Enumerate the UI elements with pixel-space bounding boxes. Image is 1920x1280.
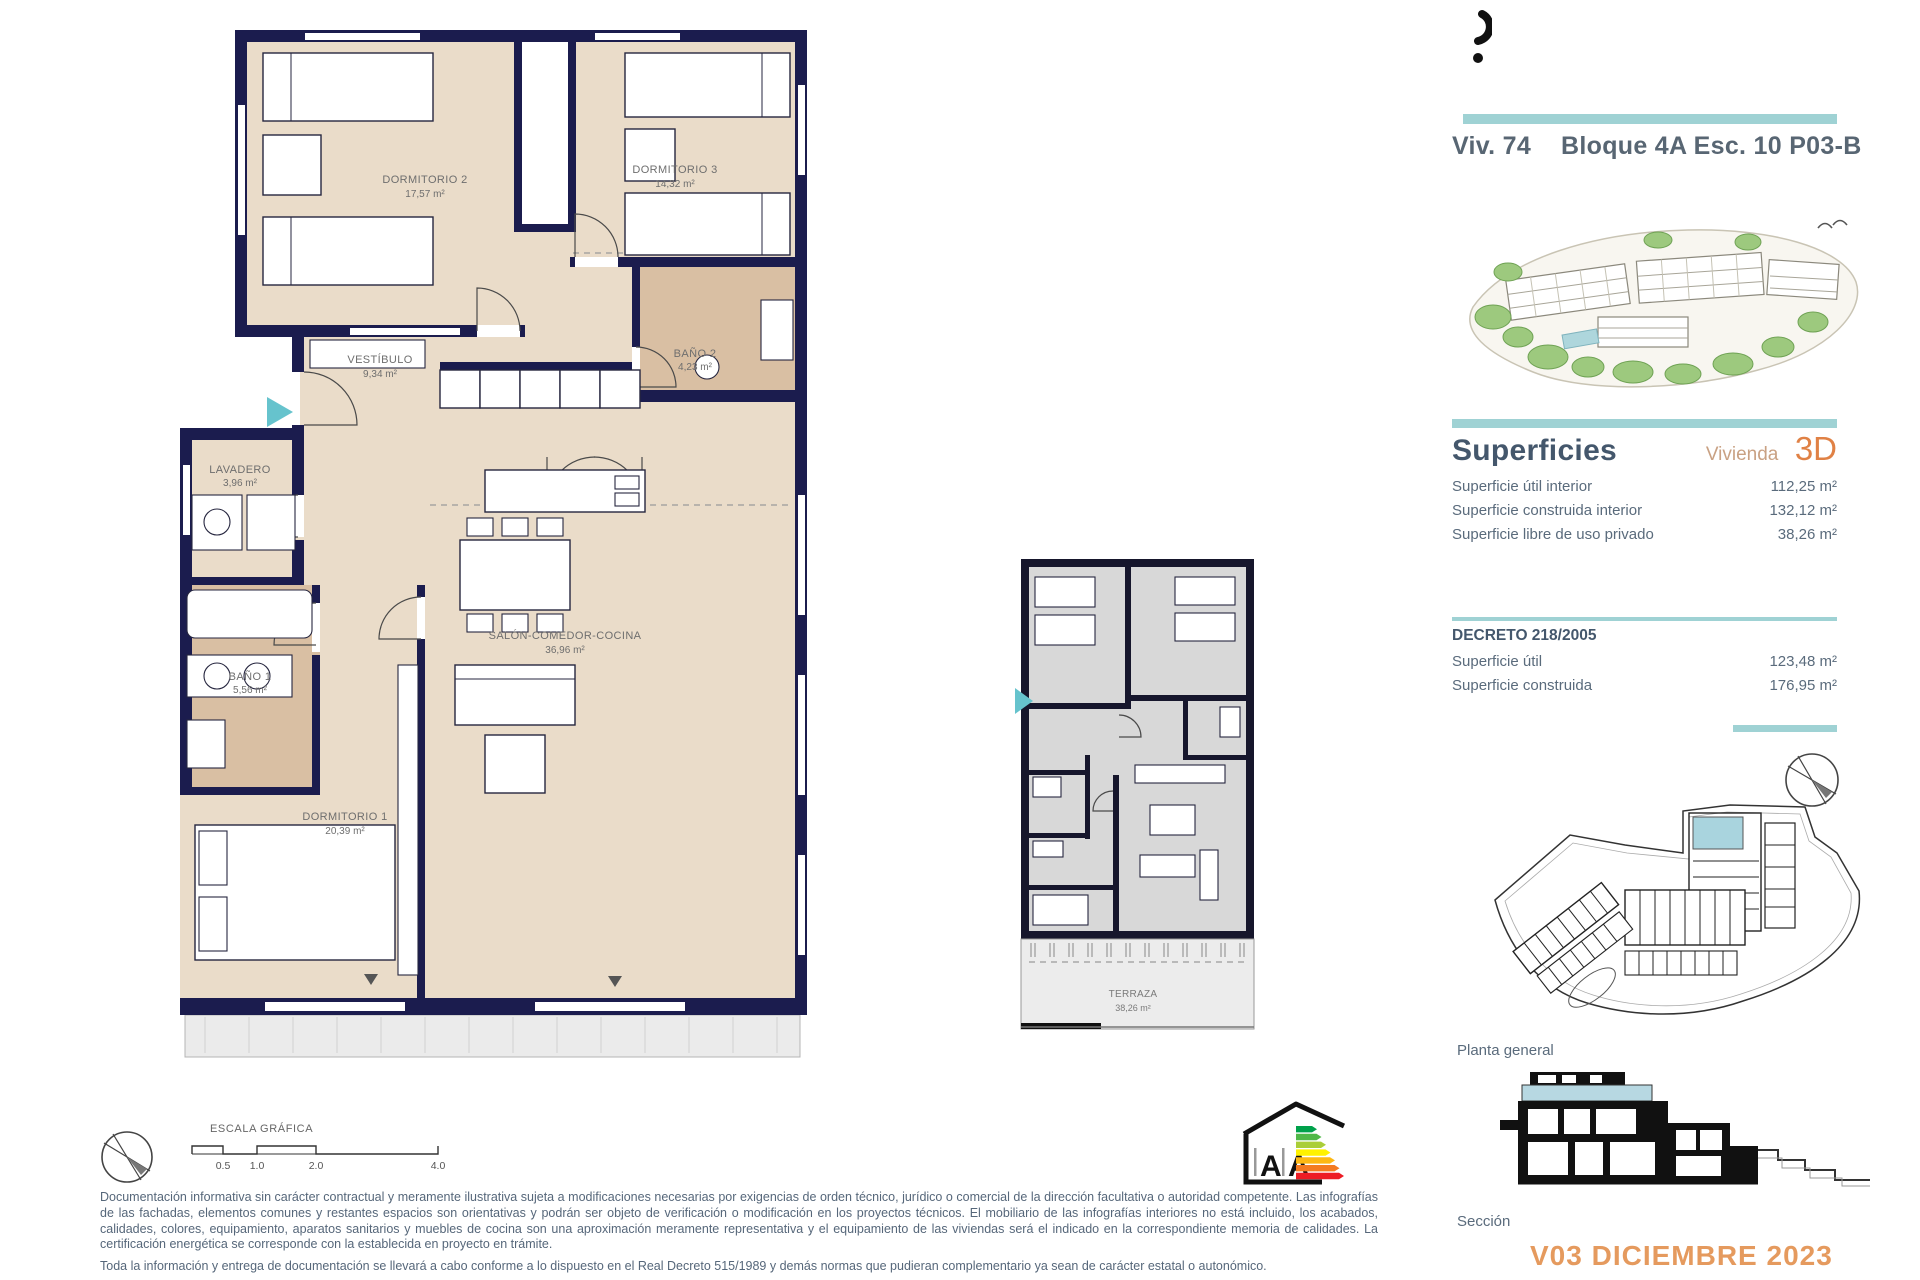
divider-bar: [1463, 114, 1837, 124]
site-plan: [1475, 795, 1875, 1040]
room-area: 9,34 m²: [363, 369, 398, 380]
disclaimer-paragraph: Toda la información y entrega de documen…: [100, 1259, 1378, 1275]
table-row: Superficie construida 176,95 m²: [1452, 677, 1837, 694]
scale-tick: 1.0: [250, 1160, 265, 1172]
row-label: Superficie libre de uso privado: [1452, 526, 1654, 543]
section-drawing: [1500, 1068, 1870, 1198]
divider-bar-short: [1733, 725, 1837, 732]
terrace-label: TERRAZA: [1109, 989, 1158, 1000]
disclaimer-paragraph: Documentación informativa sin carácter c…: [100, 1190, 1378, 1253]
site-block-center: [1625, 890, 1745, 975]
terrace-strip: [185, 1015, 800, 1057]
site-plan-caption: Planta general: [1457, 1042, 1554, 1059]
corridor-top: [520, 230, 640, 327]
logo-fragment: [1462, 8, 1492, 66]
divider-bar: [1452, 419, 1837, 428]
energy-rating-icon: A A: [1238, 1092, 1350, 1190]
room-area: 36,96 m²: [545, 645, 585, 656]
compass-icon: [98, 1128, 156, 1186]
row-label: Superficie construida interior: [1452, 502, 1642, 519]
superficies-heading: Superficies: [1452, 434, 1617, 468]
entrance-arrow-icon: [267, 397, 293, 427]
bird-icon: [1818, 221, 1847, 229]
room-label: SALÓN-COMEDOR-COCINA: [489, 629, 642, 642]
room-label: DORMITORIO 1: [302, 811, 387, 823]
terrace-area: 38,26 m²: [1115, 1003, 1151, 1013]
row-value: 112,25 m²: [1771, 478, 1837, 495]
vivienda-group: Vivienda 3D: [1706, 430, 1837, 468]
energy-letter: A: [1260, 1150, 1282, 1183]
room-area: 4,23 m²: [678, 362, 713, 373]
scale-tick: 4.0: [431, 1160, 446, 1172]
section-caption: Sección: [1457, 1213, 1510, 1230]
room-area: 5,56 m²: [233, 685, 268, 696]
room-area: 17,57 m²: [405, 189, 445, 200]
table-row: Superficie libre de uso privado 38,26 m²: [1452, 526, 1837, 543]
row-label: Superficie útil: [1452, 653, 1542, 670]
table-row: Superficie útil interior 112,25 m²: [1452, 478, 1837, 495]
floorplan-sheet: DORMITORIO 2 17,57 m² DORMITORIO 3 14,32…: [0, 0, 1920, 1280]
highlighted-unit: [1693, 817, 1743, 849]
row-label: Superficie útil interior: [1452, 478, 1592, 495]
unit-location: Bloque 4A Esc. 10 P03-B: [1561, 132, 1862, 161]
key-plan: TERRAZA 38,26 m²: [1015, 555, 1260, 1055]
energy-arrows: [1296, 1126, 1344, 1179]
unit-title: Viv. 74 Bloque 4A Esc. 10 P03-B: [1452, 132, 1862, 161]
key-plan-terrace: TERRAZA 38,26 m²: [1021, 939, 1254, 1029]
room-label: DORMITORIO 3: [632, 164, 717, 176]
room-label: BAÑO 2: [674, 347, 717, 360]
room-label: BAÑO 1: [229, 670, 272, 683]
shaft: [520, 40, 570, 230]
aerial-render: [1448, 212, 1873, 402]
room-label: DORMITORIO 2: [382, 174, 467, 186]
row-value: 123,48 m²: [1769, 653, 1837, 670]
vivienda-type: 3D: [1795, 430, 1837, 467]
graphic-scale: ESCALA GRÁFICA 0.5 1.0 2.0 4.0: [180, 1118, 450, 1176]
room-area: 14,32 m²: [655, 179, 695, 190]
divider-line: [1452, 617, 1837, 621]
corridor-bottom: [300, 455, 425, 585]
scale-title: ESCALA GRÁFICA: [210, 1122, 313, 1135]
room-label: VESTÍBULO: [347, 353, 412, 366]
row-value: 132,12 m²: [1769, 502, 1837, 519]
room-area: 3,96 m²: [223, 478, 258, 489]
superficies-header: Superficies Vivienda 3D: [1452, 430, 1837, 468]
row-value: 38,26 m²: [1778, 526, 1837, 543]
scale-tick: 0.5: [216, 1160, 231, 1172]
room-label: LAVADERO: [209, 464, 271, 476]
main-floor-plan: DORMITORIO 2 17,57 m² DORMITORIO 3 14,32…: [95, 25, 815, 1070]
superficies-table: Superficie útil interior 112,25 m² Super…: [1452, 478, 1837, 550]
row-label: Superficie construida: [1452, 677, 1592, 694]
decreto-block: DECRETO 218/2005 Superficie útil 123,48 …: [1452, 627, 1837, 701]
table-row: Superficie útil 123,48 m²: [1452, 653, 1837, 670]
room-area: 20,39 m²: [325, 826, 365, 837]
unit-number: Viv. 74: [1452, 132, 1531, 161]
row-value: 176,95 m²: [1769, 677, 1837, 694]
table-row: Superficie construida interior 132,12 m²: [1452, 502, 1837, 519]
vivienda-label: Vivienda: [1706, 444, 1779, 465]
scale-tick: 2.0: [309, 1160, 324, 1172]
decreto-heading: DECRETO 218/2005: [1452, 627, 1837, 645]
version-stamp: V03 DICIEMBRE 2023: [1530, 1240, 1833, 1272]
